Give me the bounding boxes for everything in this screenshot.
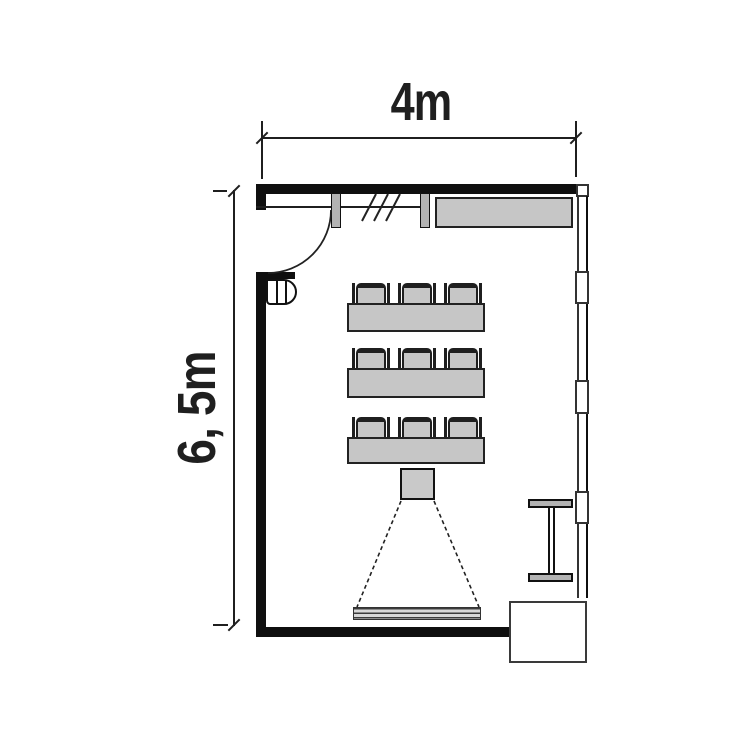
door-swing-arc: [268, 210, 331, 273]
door-hatch-mark: [386, 194, 400, 221]
projection-cone-edge: [434, 501, 479, 607]
floor-plan: 4m 6, 5m: [0, 0, 750, 750]
plan-stroke-overlay: [0, 0, 750, 750]
door-hatch-mark: [374, 194, 388, 221]
door-hatch-mark: [362, 194, 376, 221]
projection-cone-edge: [357, 501, 401, 607]
